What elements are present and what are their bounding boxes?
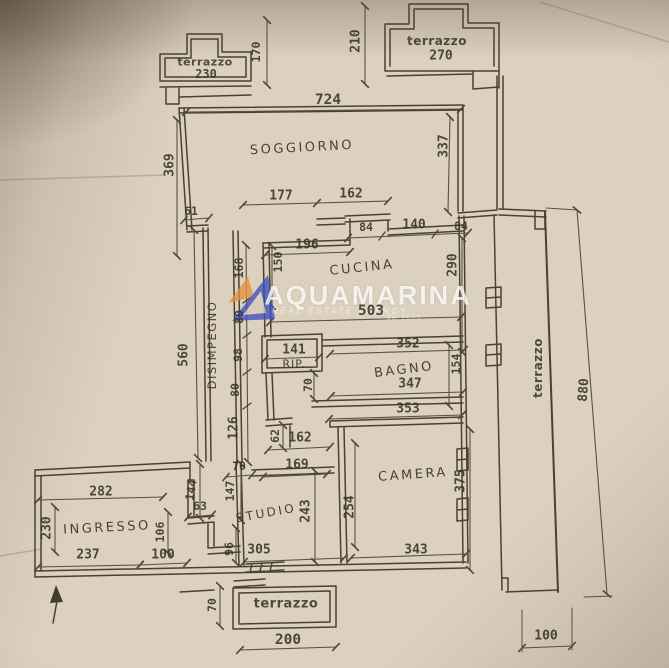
- dim-243: 243: [299, 499, 314, 522]
- dim-80-lower: 80: [228, 383, 242, 397]
- walls-layer: [35, 4, 558, 629]
- floorplan-photo: AQUAMARINA REAL ESTATE AGENCY dal 2003 t…: [0, 0, 669, 668]
- dim-347: 347: [398, 377, 421, 392]
- dim-98: 98: [231, 348, 245, 362]
- room-label-disimpegno: DISIMPEGNO: [205, 301, 219, 390]
- dim-305: 305: [247, 543, 270, 558]
- dim-168: 168: [232, 258, 246, 279]
- room-label-terrazzo-right: terrazzo: [531, 338, 545, 398]
- room-label-rip: RIP.: [282, 358, 305, 371]
- dim-70-terrazzo: 70: [205, 598, 219, 612]
- dim-177: 177: [269, 189, 292, 204]
- dim-337: 337: [437, 134, 452, 157]
- room-label-terrazzo-bottom: terrazzo: [254, 597, 319, 612]
- dim-375: 375: [454, 469, 469, 492]
- dim-170: 170: [249, 42, 263, 63]
- dim-353: 353: [396, 402, 419, 417]
- dim-162-camera: 162: [288, 431, 311, 446]
- dim-282: 282: [89, 485, 112, 500]
- dim-70-studio-door: 70: [232, 459, 246, 473]
- dim-196: 196: [295, 238, 318, 253]
- dim-169: 169: [285, 458, 308, 473]
- dim-140: 140: [402, 218, 425, 233]
- dim-369: 369: [163, 153, 178, 176]
- dim-84-left: 84: [359, 220, 373, 234]
- dim-62: 62: [268, 429, 282, 443]
- dim-210: 210: [349, 29, 364, 52]
- dim-230-ingresso: 230: [40, 516, 55, 539]
- dim-70-bagno: 70: [301, 378, 315, 392]
- dim-503: 503: [358, 303, 384, 319]
- dim-560: 560: [177, 343, 192, 366]
- dim-terrazzo-top-right-size: 270: [429, 49, 452, 64]
- watermark-tagline: dal 2003: [387, 315, 422, 322]
- dim-154: 154: [449, 354, 463, 375]
- dim-141: 141: [282, 343, 305, 358]
- dim-84-right: 84: [454, 219, 468, 233]
- dim-162-top: 162: [339, 187, 362, 202]
- dim-63: 63: [193, 499, 207, 513]
- dim-126: 126: [227, 416, 242, 439]
- dim-100-right: 100: [534, 629, 557, 644]
- north-arrow: [50, 585, 63, 623]
- dim-147: 147: [223, 481, 237, 502]
- dim-724: 724: [315, 92, 341, 108]
- dim-100-ingresso: 100: [151, 548, 174, 563]
- dim-80-upper: 80: [232, 310, 246, 324]
- dim-237: 237: [76, 548, 99, 563]
- dim-200: 200: [275, 632, 301, 648]
- dim-343: 343: [404, 543, 427, 558]
- dim-96: 96: [222, 542, 236, 556]
- dim-61: 61: [184, 204, 198, 218]
- room-label-terrazzo-top-right: terrazzo: [407, 34, 467, 48]
- dim-terrazzo-top-left-size: 230: [195, 67, 217, 81]
- dim-106: 106: [153, 522, 167, 543]
- dim-254: 254: [343, 495, 358, 518]
- dim-880: 880: [576, 378, 593, 402]
- dim-150: 150: [271, 252, 285, 273]
- dim-290: 290: [446, 253, 461, 276]
- dim-352: 352: [396, 337, 419, 352]
